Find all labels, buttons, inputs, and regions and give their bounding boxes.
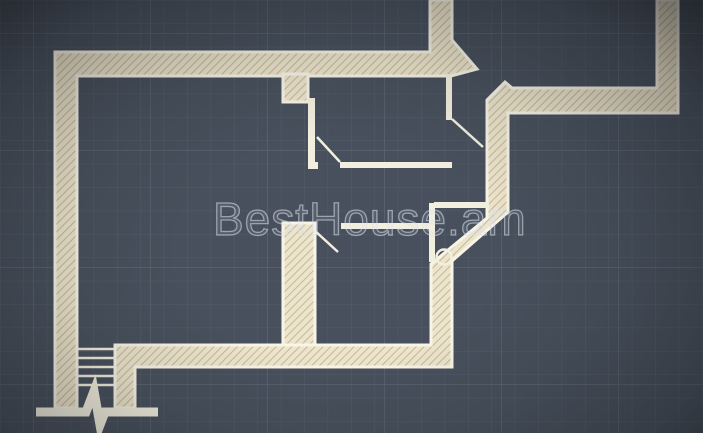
bedroom-right-partition <box>446 74 452 120</box>
watermark-text: BestHouse.am <box>213 192 527 246</box>
bedroom-bottom-partition <box>340 162 452 168</box>
entry-stub-wall <box>283 74 308 102</box>
bedroom-corner-stub <box>308 162 318 169</box>
floorplan-photo: BestHouse.am <box>0 0 703 433</box>
bedroom-left-partition <box>308 98 315 164</box>
